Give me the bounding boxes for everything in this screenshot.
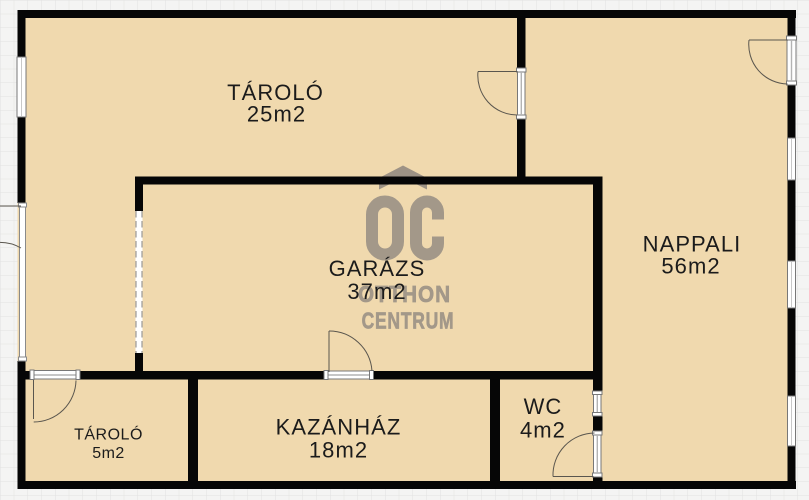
- svg-text:TÁROLÓ: TÁROLÓ: [74, 425, 143, 444]
- svg-text:5m2: 5m2: [92, 445, 125, 462]
- svg-text:KAZÁNHÁZ: KAZÁNHÁZ: [276, 415, 402, 440]
- svg-text:WC: WC: [524, 394, 563, 419]
- svg-text:18m2: 18m2: [309, 438, 368, 463]
- svg-text:37m2: 37m2: [347, 279, 406, 304]
- svg-text:GARÁZS: GARÁZS: [329, 256, 426, 281]
- svg-text:25m2: 25m2: [247, 102, 306, 127]
- svg-text:56m2: 56m2: [661, 254, 720, 279]
- svg-text:4m2: 4m2: [520, 418, 566, 443]
- svg-text:CENTRUM: CENTRUM: [362, 308, 455, 334]
